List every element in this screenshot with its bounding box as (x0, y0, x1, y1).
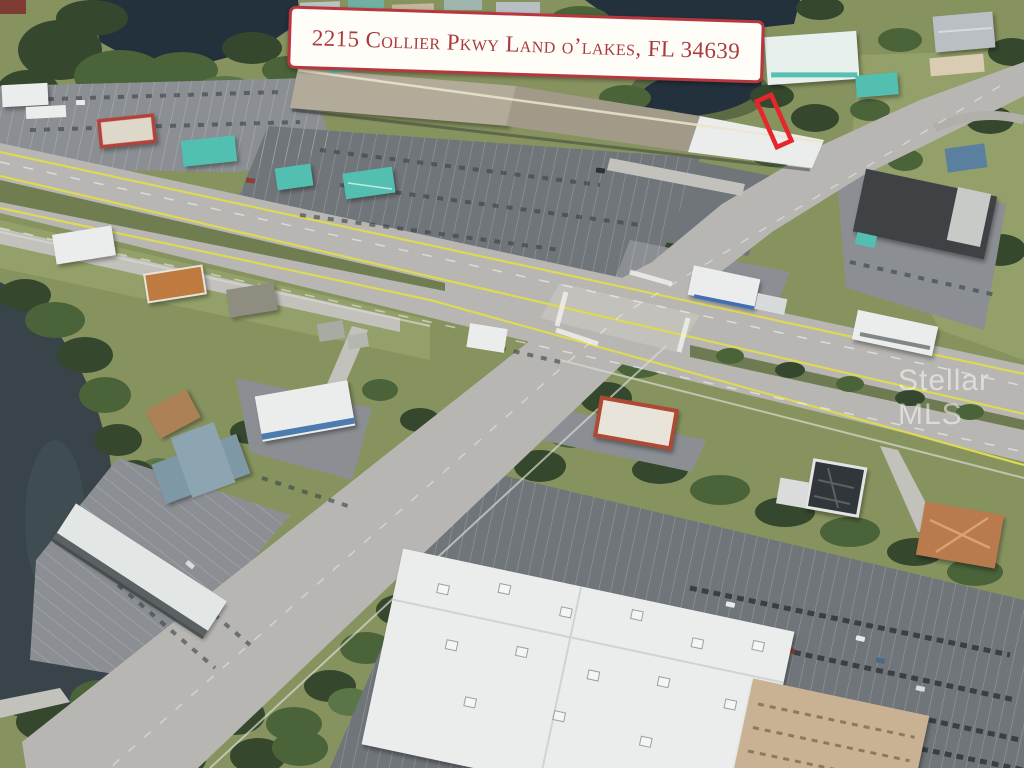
map-scene (0, 0, 1024, 768)
address-banner-text: 2215 Collier Pkwy Land o’lakes, FL 34639 (311, 25, 740, 64)
aerial-listing-photo: 2215 Collier Pkwy Land o’lakes, FL 34639… (0, 0, 1024, 768)
building-bank-grid-roof (806, 460, 866, 516)
building-office-topleft (1, 83, 48, 107)
building-bank-canopy (776, 478, 810, 509)
building-fastfood-red-roof (99, 115, 155, 147)
building-corner-red (0, 0, 26, 14)
building-teal-hut (855, 72, 899, 98)
building-small-topleft (26, 105, 67, 119)
